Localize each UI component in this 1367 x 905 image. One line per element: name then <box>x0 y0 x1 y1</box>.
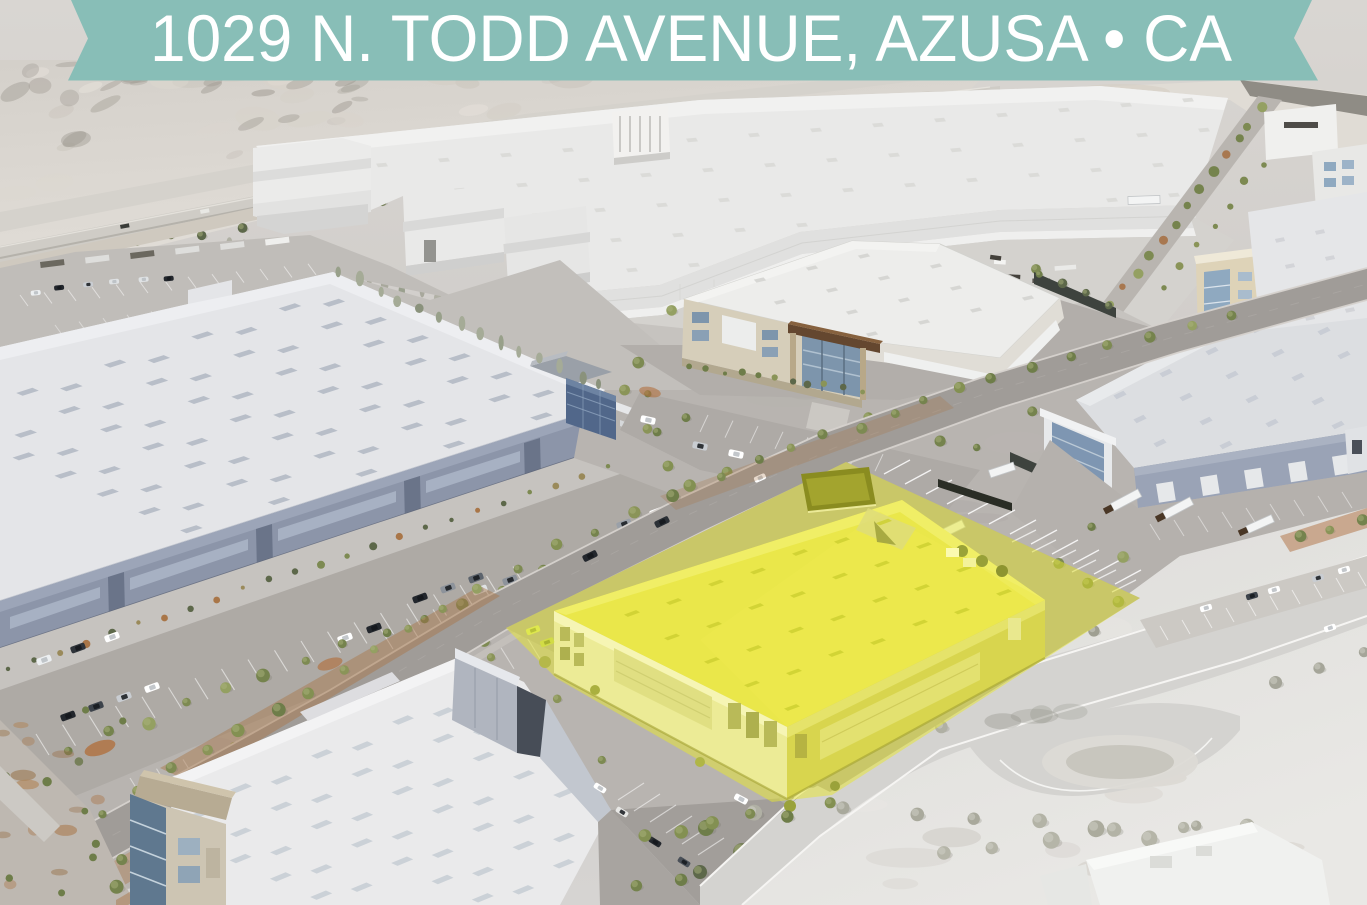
svg-text:1029 N. TODD AVENUE, AZUSA • C: 1029 N. TODD AVENUE, AZUSA • CA <box>150 1 1232 75</box>
